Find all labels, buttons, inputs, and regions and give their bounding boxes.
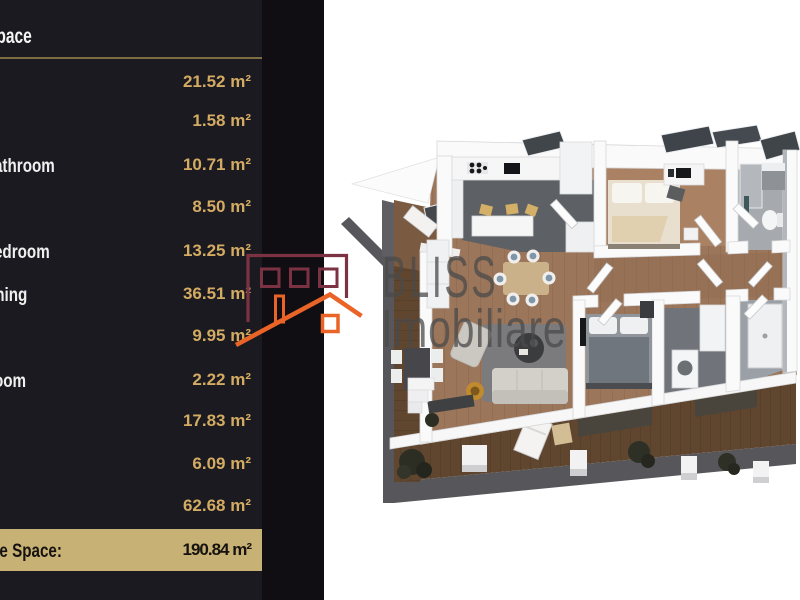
svg-text:Imobiliare: Imobiliare	[381, 300, 566, 360]
